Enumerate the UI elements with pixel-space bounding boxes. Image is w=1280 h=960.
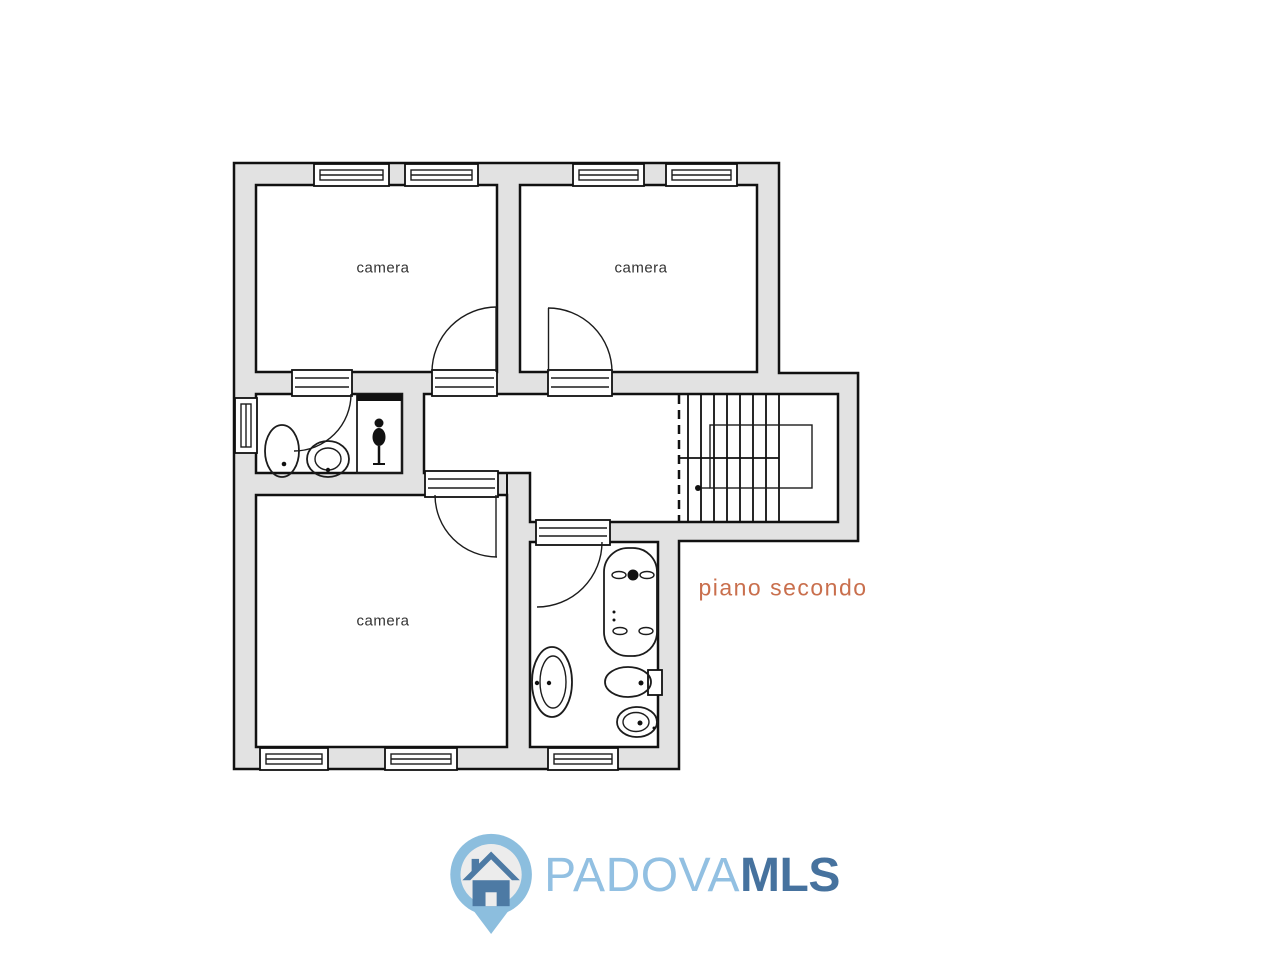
room-areas xyxy=(256,185,838,747)
room-camera-top-right-area xyxy=(520,185,757,372)
room-label-camera-top-left: camera xyxy=(356,260,409,277)
brand-name-secondary: MLS xyxy=(740,849,840,902)
stairs-direction-dot xyxy=(695,485,701,491)
window-symbol xyxy=(405,164,478,186)
window-symbol xyxy=(548,748,618,770)
brand-logo: PADOVAMLS xyxy=(444,832,840,934)
door-threshold xyxy=(432,370,497,396)
window-symbol xyxy=(573,164,644,186)
brand-name-primary: PADOVA xyxy=(544,849,740,902)
room-label-camera-bottom-left: camera xyxy=(356,613,409,630)
room-label-camera-top-right: camera xyxy=(614,260,667,277)
window-symbol xyxy=(314,164,389,186)
brand-name: PADOVAMLS xyxy=(544,852,840,914)
window-symbol xyxy=(666,164,737,186)
window-symbol xyxy=(385,748,457,770)
floor-plan-page: camera camera camera piano secondo PADOV… xyxy=(0,0,1280,960)
house-pin-icon xyxy=(444,832,538,934)
door-threshold xyxy=(425,471,498,497)
window-symbol xyxy=(260,748,328,770)
floor-plan-drawing xyxy=(0,0,1280,960)
window-symbol xyxy=(235,398,257,453)
door-threshold xyxy=(548,370,612,396)
door-threshold xyxy=(292,370,352,396)
room-camera-top-left-area xyxy=(256,185,497,372)
floor-level-label: piano secondo xyxy=(698,575,867,602)
door-threshold xyxy=(536,520,610,545)
